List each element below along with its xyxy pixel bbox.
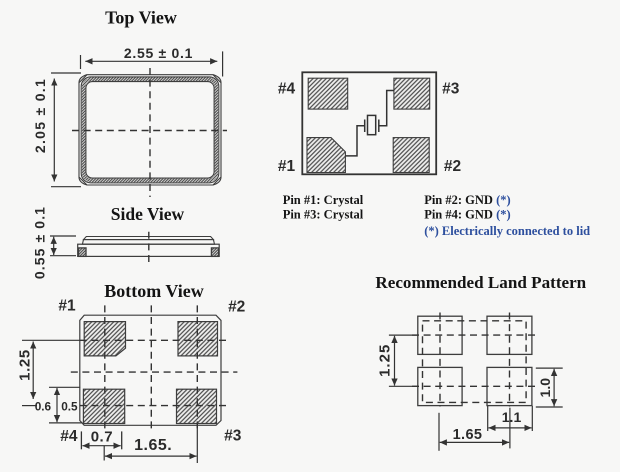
svg-text:1.25: 1.25 [376,344,393,377]
svg-text:0.5: 0.5 [61,399,78,413]
svg-text:Pin #4: GND (*): Pin #4: GND (*) [424,207,510,221]
svg-text:Top View: Top View [105,8,177,28]
svg-text:2.05 ± 0.1: 2.05 ± 0.1 [32,78,48,153]
svg-text:0.55 ± 0.1: 0.55 ± 0.1 [32,206,48,279]
svg-text:1.0: 1.0 [537,378,553,398]
svg-text:(*) Electrically connected to: (*) Electrically connected to lid [424,224,590,238]
svg-text:0.7: 0.7 [91,429,113,446]
svg-text:#1: #1 [58,297,76,314]
svg-text:#3: #3 [224,427,242,444]
svg-text:#2: #2 [228,298,245,315]
svg-text:2.55 ± 0.1: 2.55 ± 0.1 [124,45,193,61]
svg-text:Pin #1: Crystal: Pin #1: Crystal [283,193,364,207]
svg-text:#1: #1 [278,158,296,175]
svg-text:Pin #3: Crystal: Pin #3: Crystal [283,207,364,221]
svg-text:Recommended Land Pattern: Recommended Land Pattern [375,273,586,292]
svg-text:#3: #3 [442,80,460,97]
svg-text:1.65: 1.65 [453,427,483,443]
svg-text:#4: #4 [60,428,78,445]
svg-text:#2: #2 [444,158,461,175]
svg-text:#4: #4 [278,80,296,97]
svg-text:Pin #2: GND (*): Pin #2: GND (*) [424,193,510,207]
svg-text:Bottom View: Bottom View [104,281,203,301]
svg-text:1.65.: 1.65. [134,437,172,454]
svg-text:0.6: 0.6 [35,399,52,413]
svg-text:Side View: Side View [111,204,185,224]
svg-text:1.1: 1.1 [502,409,522,425]
svg-text:1.25: 1.25 [16,349,33,381]
